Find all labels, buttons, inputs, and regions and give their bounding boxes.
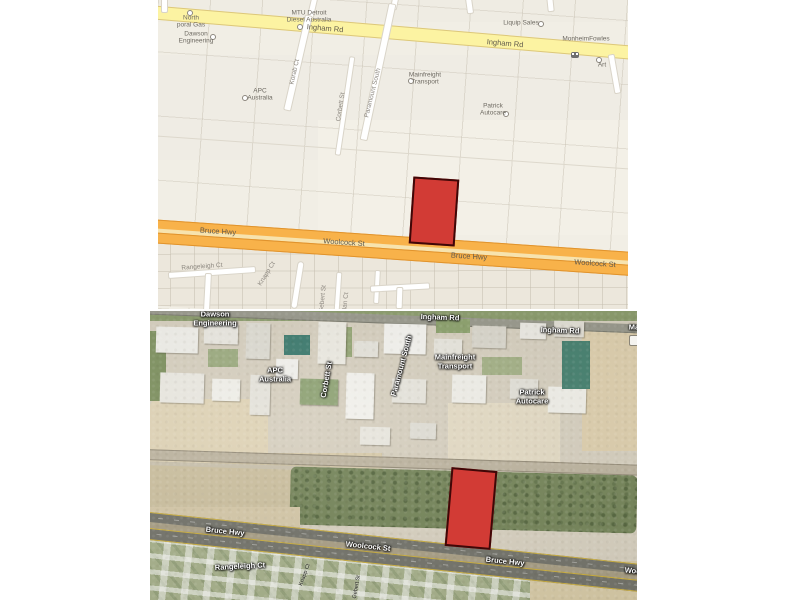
- knapp-ct-label: Knapp Ct: [257, 261, 278, 288]
- transit-badge-icon: [629, 335, 637, 346]
- north-poral-gas-label: North poral Gas: [177, 15, 205, 30]
- building: [204, 324, 239, 345]
- building: [246, 323, 271, 360]
- vegetation-patch: [436, 319, 470, 333]
- woolcock-st-label: Woolcock St: [574, 258, 616, 269]
- bus-icon: [571, 52, 579, 58]
- building: [360, 427, 390, 446]
- building: [345, 373, 374, 420]
- poi-dot-icon: [242, 95, 248, 101]
- street-map-labels-layer: Ingham RdIngham RdBruce HwyWoolcock StBr…: [158, 0, 628, 309]
- poi-dot-icon: [408, 78, 414, 84]
- building: [384, 323, 427, 354]
- building: [452, 375, 487, 404]
- street-map-panel[interactable]: Ingham RdIngham RdBruce HwyWoolcock StBr…: [158, 0, 628, 309]
- building: [410, 423, 436, 440]
- poi-dot-icon: [503, 111, 509, 117]
- ingham-rd-label: Ingham Rd: [306, 23, 343, 35]
- building: [392, 379, 427, 404]
- building: [354, 341, 378, 358]
- gebert-st-label: Gebert St: [318, 285, 328, 309]
- monheimfowles-label: MonheimFowles: [562, 35, 609, 42]
- bruce-hwy-label: Bruce Hwy: [451, 251, 488, 262]
- woolcock-st-label: Woolcock St: [323, 237, 365, 248]
- patrick-autocare-label: Patrick Autocare: [480, 103, 506, 118]
- highlighted-parcel-satellite: [445, 467, 498, 550]
- pond: [284, 335, 310, 355]
- page-canvas: Ingham RdIngham RdBruce HwyWoolcock StBr…: [0, 0, 800, 600]
- vegetation-patch: [482, 357, 522, 375]
- liquip-sales-label: Liquip Sales: [503, 19, 538, 26]
- korab-ct-label: Korab Ct: [288, 59, 301, 86]
- poi-dot-icon: [596, 57, 602, 63]
- building: [249, 375, 270, 416]
- rangeleigh-ct-label: Rangeleigh Ct: [181, 262, 223, 272]
- building: [520, 323, 546, 340]
- pond: [562, 341, 590, 389]
- building: [472, 326, 507, 349]
- highlighted-parcel-street: [409, 176, 460, 246]
- ingham-rd-label: Ingham Rd: [486, 38, 523, 50]
- poi-dot-icon: [187, 10, 193, 16]
- building: [276, 359, 299, 380]
- building: [434, 339, 462, 358]
- sand-lot: [448, 403, 560, 465]
- ian-ct-label: Ian Ct: [341, 292, 350, 309]
- building: [548, 387, 587, 414]
- vegetation-patch: [208, 349, 238, 367]
- building: [300, 379, 339, 406]
- mtu-detroit-diesel-label: MTU Detroit Diesel Australia: [287, 10, 332, 25]
- poi-dot-icon: [210, 34, 216, 40]
- building: [317, 322, 346, 365]
- bruce-hwy-label: Bruce Hwy: [200, 226, 237, 237]
- building: [554, 321, 584, 338]
- building: [156, 326, 199, 353]
- paramount-south-label: Paramount South: [363, 68, 382, 119]
- apc-australia-label: APC Australia: [247, 88, 272, 103]
- building: [510, 379, 539, 400]
- building: [212, 379, 241, 402]
- poi-dot-icon: [538, 21, 544, 27]
- building: [160, 372, 205, 403]
- corbett-st-label: Corbett St: [335, 92, 347, 122]
- satellite-map-panel[interactable]: Ingham RdIngham RdMaDawson EngineeringAP…: [150, 311, 637, 600]
- dawson-engineering-label: Dawson Engineering: [179, 31, 214, 46]
- poi-dot-icon: [297, 24, 303, 30]
